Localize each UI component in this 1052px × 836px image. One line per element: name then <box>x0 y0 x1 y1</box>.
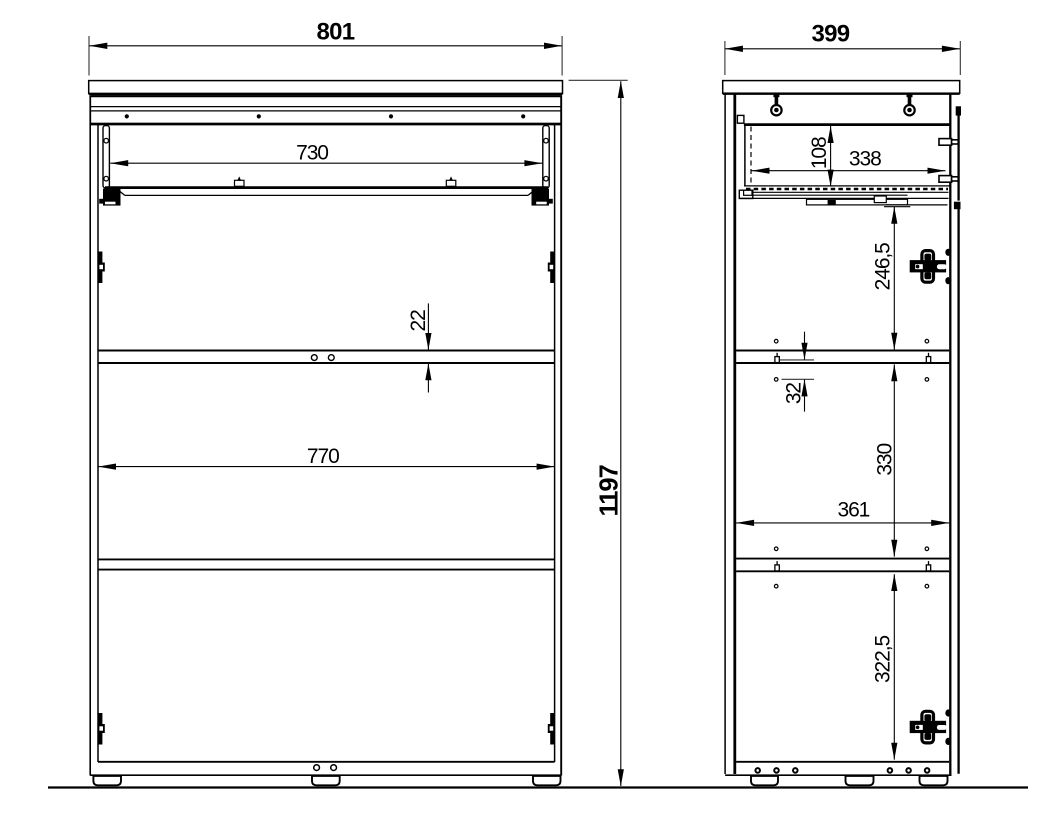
svg-text:338: 338 <box>849 147 881 170</box>
svg-text:330: 330 <box>873 444 896 476</box>
svg-text:322,5: 322,5 <box>871 636 894 683</box>
svg-text:361: 361 <box>838 499 870 522</box>
svg-text:1197: 1197 <box>596 464 624 516</box>
svg-text:22: 22 <box>407 310 430 332</box>
svg-text:246,5: 246,5 <box>871 243 894 290</box>
svg-text:108: 108 <box>808 137 831 169</box>
svg-text:730: 730 <box>296 142 328 165</box>
svg-text:770: 770 <box>307 445 339 468</box>
svg-text:32: 32 <box>782 383 805 405</box>
svg-text:801: 801 <box>317 19 355 46</box>
svg-text:399: 399 <box>812 21 850 48</box>
